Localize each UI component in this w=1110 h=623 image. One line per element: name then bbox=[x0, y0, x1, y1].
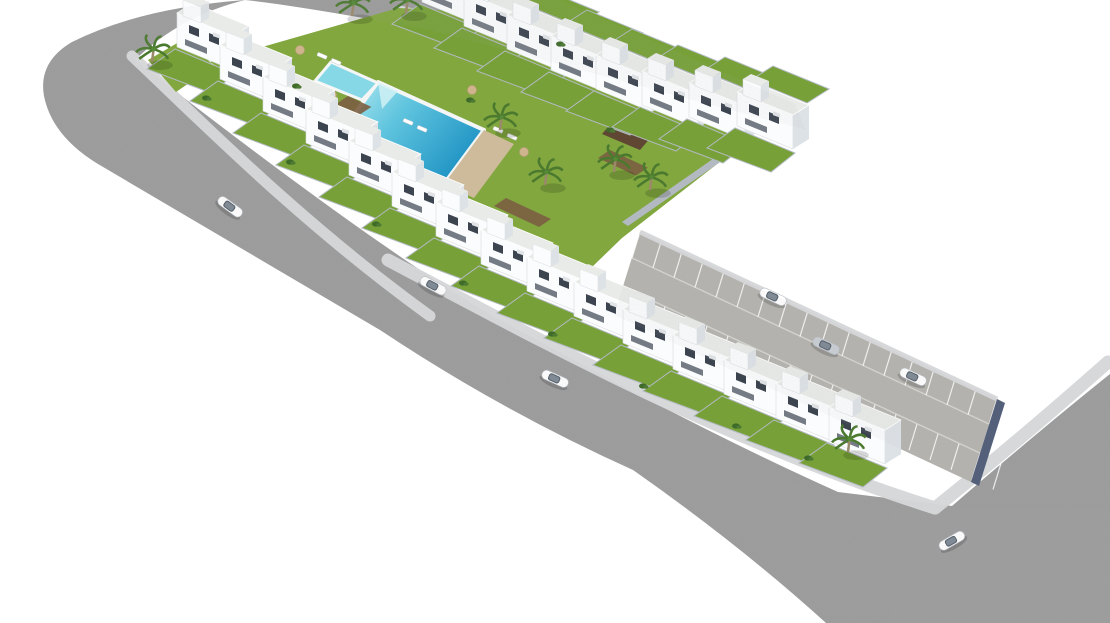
render-canvas: Aerial 3D architectural render of a resi… bbox=[0, 0, 1110, 623]
parasol bbox=[296, 46, 305, 55]
parasol bbox=[468, 86, 477, 95]
parasol bbox=[520, 148, 529, 157]
development-aerial-render: Aerial 3D architectural render of a resi… bbox=[0, 0, 1110, 623]
